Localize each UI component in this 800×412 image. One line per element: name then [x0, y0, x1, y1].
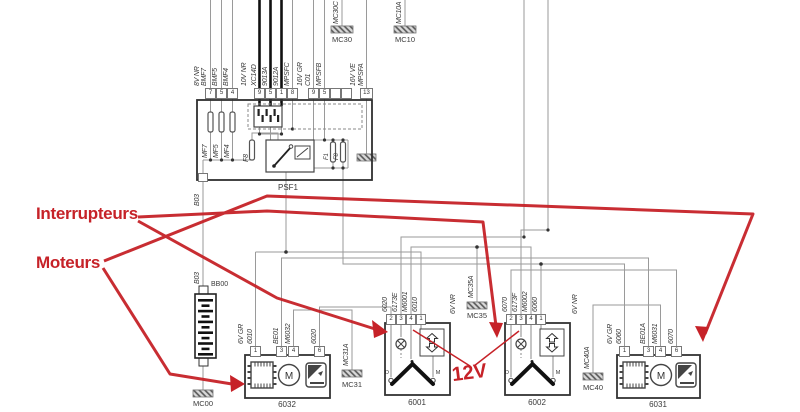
wire-label: C01 [305, 74, 313, 86]
wire-label: M6001 [402, 292, 410, 312]
fuse-label: MF7 [202, 145, 210, 158]
pin-box: 4 [526, 314, 536, 325]
wire-label: 6020 [382, 297, 390, 312]
wire-label: 6070 [668, 329, 676, 344]
wire-label: 6070 [502, 297, 510, 312]
pin-box: 3 [396, 314, 406, 325]
motor-m-glyph: M [285, 371, 293, 382]
psf1-label: PSF1 [263, 183, 313, 192]
battery-label: BB00 [211, 281, 228, 289]
motor-icon: M [279, 365, 300, 386]
wire-label: B03 [194, 272, 202, 284]
wiring-diagram-canvas: M M [0, 0, 800, 412]
wire-label: M6002 [522, 292, 530, 312]
pin-box: 1 [276, 88, 287, 99]
wire-label: MPSFB [316, 63, 324, 86]
pin-box: 4 [406, 314, 416, 325]
fuse-label: MF5 [213, 145, 221, 158]
wire-label: 9012A [273, 67, 281, 86]
ground-label: MC10 [383, 35, 427, 44]
wire-label: BE01 [273, 328, 281, 344]
pin-box: 4 [288, 346, 299, 357]
wire-label: MC10A [396, 2, 404, 24]
pin-box: 2 [386, 314, 396, 325]
wire-label: 6173F [512, 293, 520, 312]
ground-label: MC35 [455, 311, 499, 320]
wire-label: BMF7 [201, 68, 209, 86]
pin-box: 5 [319, 88, 330, 99]
pin-box: 2 [506, 314, 516, 325]
pin-box: 6 [314, 346, 325, 357]
annotation-motors: Moteurs [36, 253, 100, 273]
wire-label: BMF5 [212, 68, 220, 86]
pin-box: 8 [287, 88, 298, 99]
pin-box: 9 [308, 88, 319, 99]
annotation-voltage: 12V [451, 360, 488, 387]
fuse-label: F1 [323, 153, 331, 160]
pin-box: 5 [265, 88, 276, 99]
junction-dots [209, 127, 550, 265]
wire-label: 6010 [412, 297, 420, 312]
wire-label: 6173E [392, 293, 400, 312]
pin-box: 13 [360, 88, 373, 99]
wire-label: 6010 [247, 329, 255, 344]
wire-label: BE01A [640, 323, 648, 344]
ground-label: MC00 [181, 399, 225, 408]
connector-symbol [254, 106, 282, 127]
pin-box: 3 [643, 346, 654, 357]
arrow-buttons-icon [420, 329, 444, 356]
pin-box: 5 [216, 88, 227, 99]
wire-label: MC35A [468, 276, 476, 298]
wire-label: MC30C [333, 1, 341, 24]
wire-label: BMF4 [223, 68, 231, 86]
switch-up-glyph: M [436, 370, 441, 376]
lamp-icon [396, 339, 406, 349]
fuse-label: F8 [333, 153, 341, 160]
pin-box: 9 [254, 88, 265, 99]
wire-label: 6060 [616, 329, 624, 344]
component-id: 6001 [387, 398, 447, 407]
pin-box: 7 [205, 88, 216, 99]
bus-label: 10V NR [241, 63, 249, 86]
ground-label: MC30 [320, 35, 364, 44]
wire-label: M6031 [652, 324, 660, 344]
wire-label: MC31A [343, 344, 351, 366]
wire-label: MC40A [584, 347, 592, 369]
bus-label: 6V GR [607, 324, 615, 344]
pin-box: 4 [655, 346, 666, 357]
wire-label: MPSFC [284, 62, 292, 86]
pin-box: 1 [250, 346, 261, 357]
wire-label: B03 [194, 194, 202, 206]
pin-box: 3 [276, 346, 287, 357]
component-id: 6032 [257, 400, 317, 409]
fuse-label: MF4 [224, 145, 232, 158]
pin-box-blank [330, 88, 341, 99]
wire-label: 6060 [532, 297, 540, 312]
component-id: 6002 [507, 398, 567, 407]
pin-box-blank [198, 173, 208, 182]
ground-label: MC31 [330, 380, 374, 389]
pin-box: 4 [227, 88, 238, 99]
wire-label: M6032 [285, 324, 293, 344]
battery-symbol [195, 286, 216, 366]
pin-box: 3 [516, 314, 526, 325]
pin-box: 6 [671, 346, 682, 357]
wire-label: MPSFA [358, 63, 366, 86]
bus-label: 6V NR [572, 294, 580, 314]
pin-box: 1 [416, 314, 426, 325]
pin-box-blank [341, 88, 352, 99]
motor-icon: M [651, 365, 672, 386]
pin-box: 1 [619, 346, 630, 357]
wire-label: XC14D [251, 64, 259, 86]
component-6001-box: D M [385, 323, 450, 395]
component-6032-box: M [245, 355, 330, 398]
bus-label: 16V VE [350, 63, 358, 86]
component-6002-box [505, 323, 570, 395]
component-id: 6031 [628, 400, 688, 409]
bus-label: 6V GR [238, 324, 246, 344]
relay-symbol [266, 140, 314, 172]
switch-down-glyph: D [385, 370, 389, 376]
motor-m-glyph: M [657, 371, 665, 382]
bus-label: 16V GR [297, 62, 305, 86]
pin-box: 1 [536, 314, 546, 325]
wire-label: 6020 [311, 329, 319, 344]
annotation-switches: Interrupteurs [36, 204, 138, 224]
ground-label: MC40 [571, 383, 615, 392]
fuse-label: F8 [243, 154, 251, 162]
component-6031-box: M [617, 355, 700, 398]
wire-label: 9013A [262, 67, 270, 86]
